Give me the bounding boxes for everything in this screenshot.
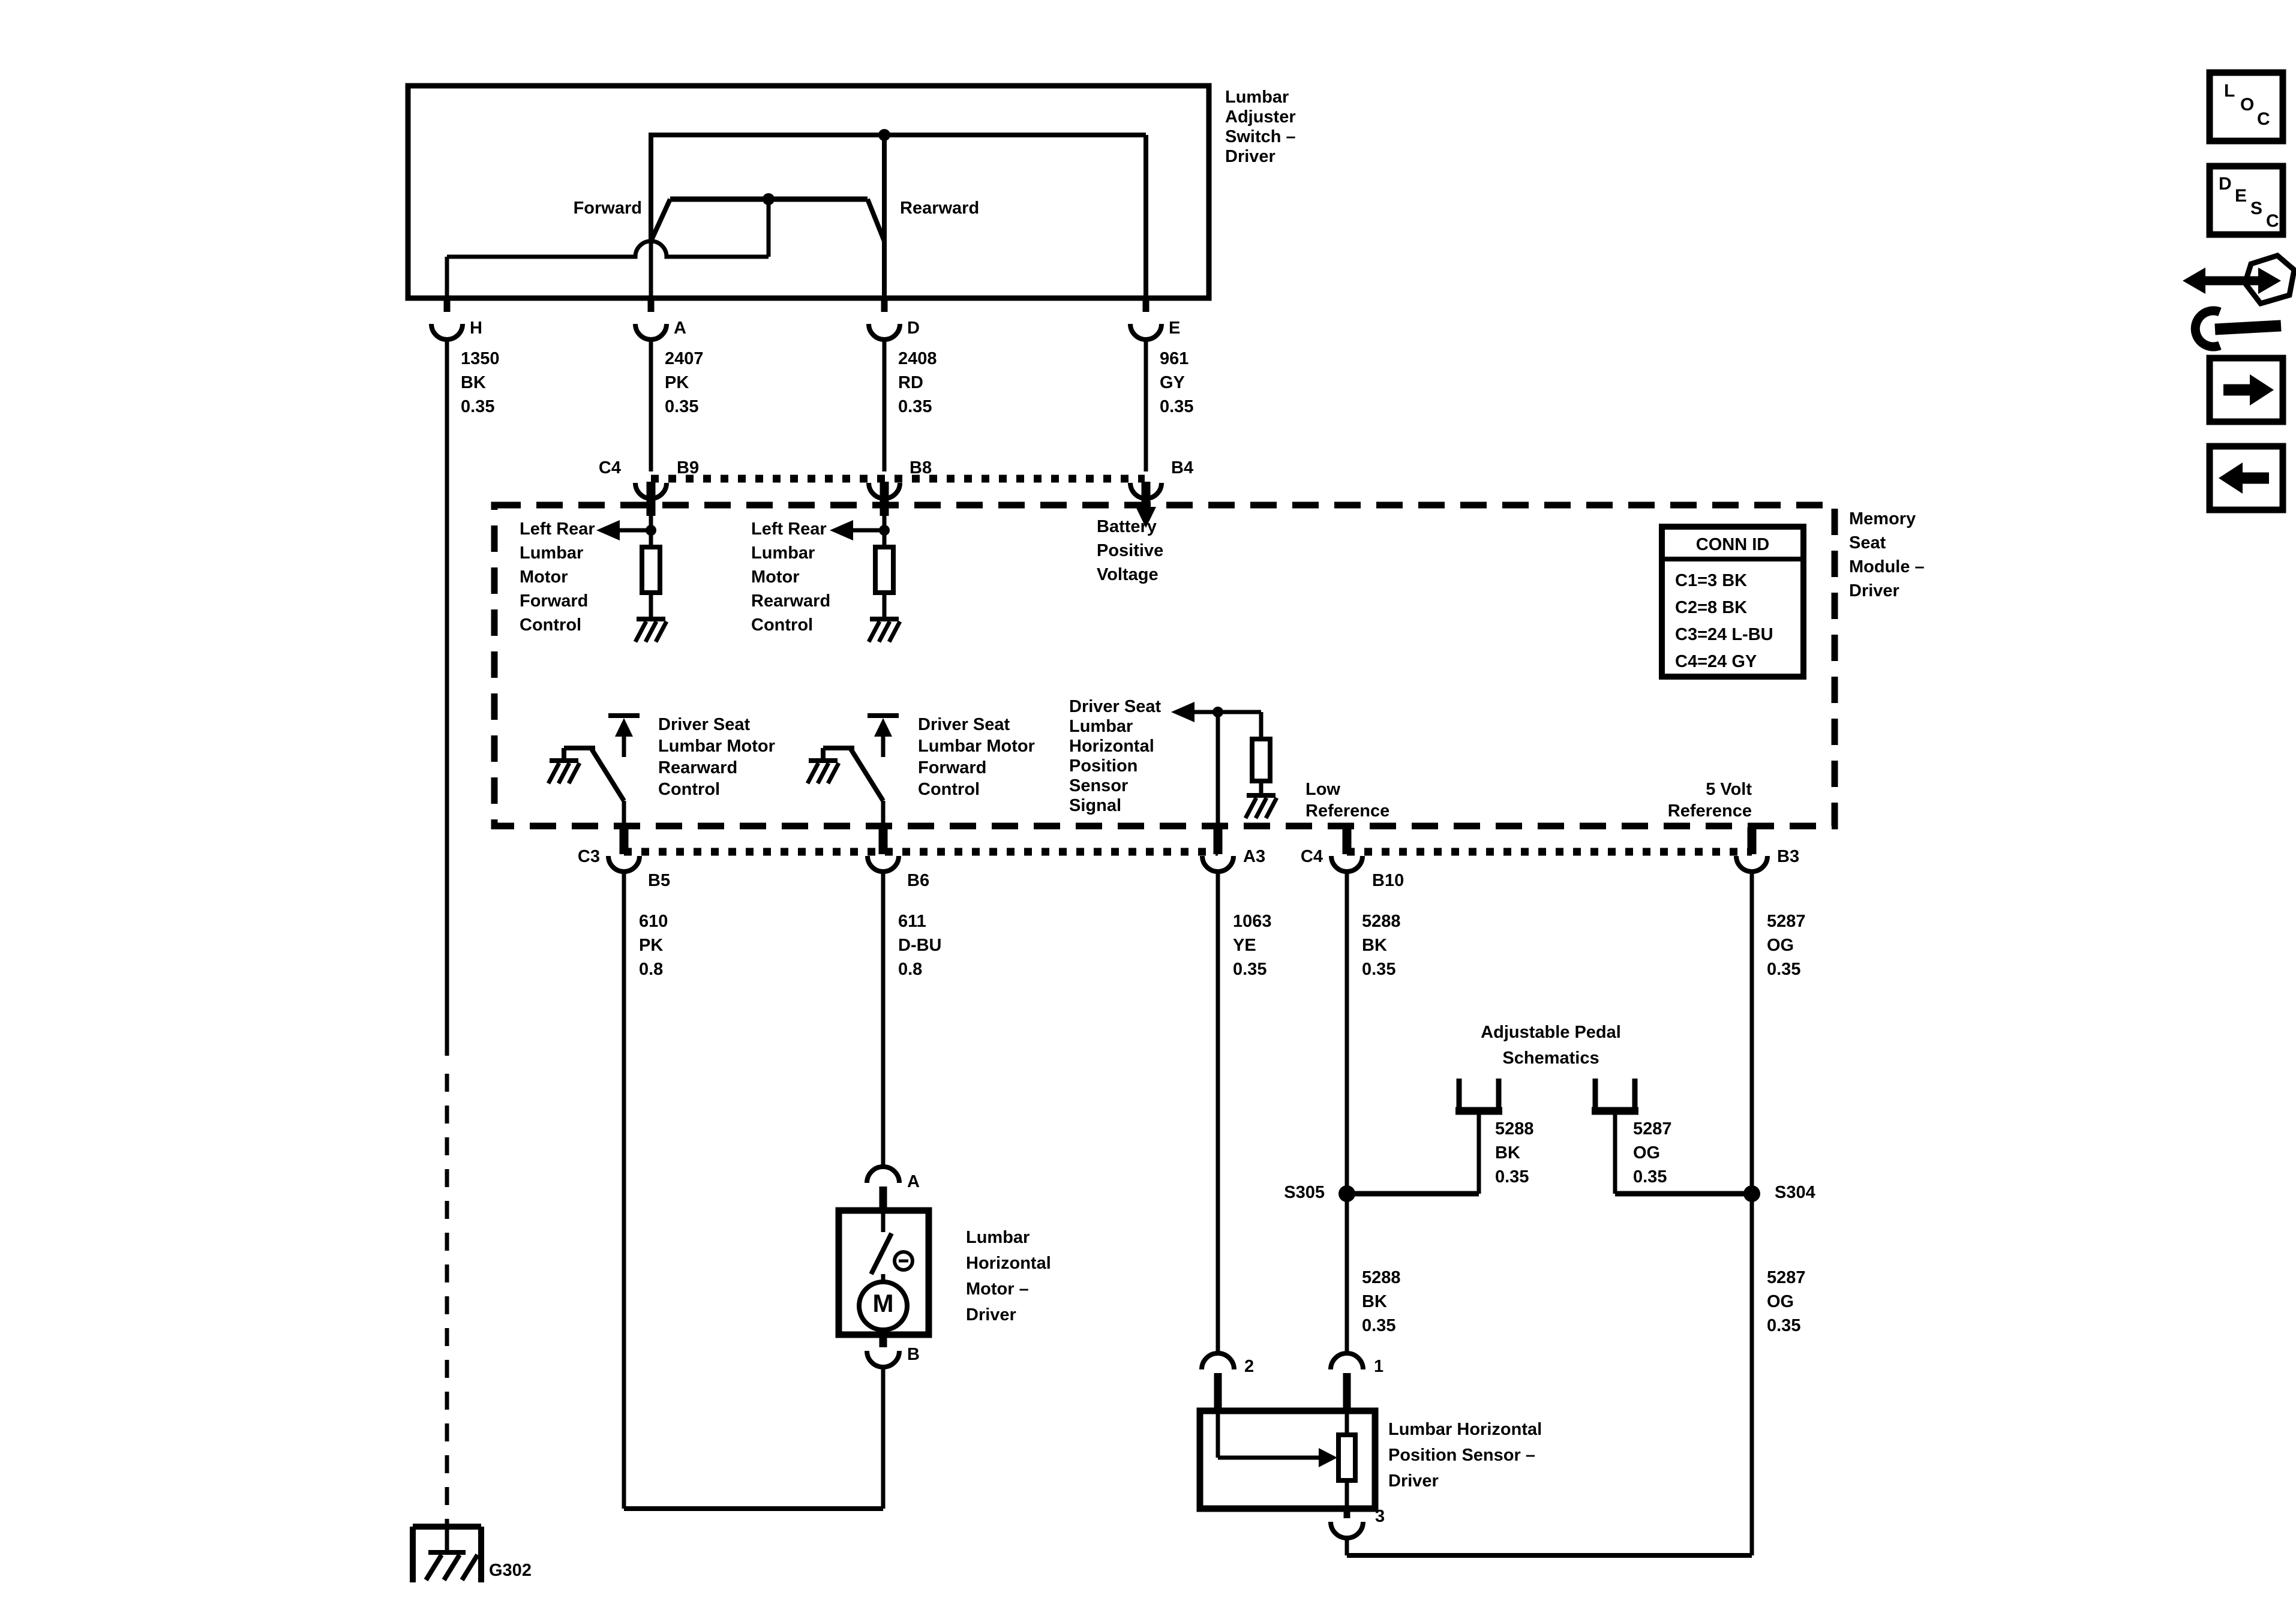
ground-icon — [548, 761, 580, 783]
conn-c4-top-label: C4 — [567, 456, 621, 480]
splice-s305-label: S305 — [1235, 1181, 1325, 1205]
wire-label-610: 610 PK 0.8 — [639, 909, 668, 981]
splice-s304-dot — [1743, 1185, 1760, 1202]
module-internal-a3-signal — [1171, 702, 1277, 827]
module-internal-b9-driver — [596, 516, 667, 642]
ds-forward-label: Driver Seat Lumbar Motor Forward Control — [918, 714, 1035, 800]
loc-letter: C — [2257, 109, 2270, 130]
potentiometer-resistor — [1338, 1435, 1355, 1480]
pin-d-connector-arc — [869, 324, 900, 340]
pin-e-connector-arc — [1130, 324, 1161, 340]
loc-letter: L — [2224, 81, 2235, 101]
wiring-diagram-page: Lumbar Adjuster Switch – Driver Forward … — [0, 0, 2296, 1613]
wire-label-5288-lower: 5288 BK 0.35 — [1362, 1266, 1401, 1338]
conn-c3-label: C3 — [546, 845, 600, 869]
up-contact-arrow-icon — [874, 718, 892, 737]
conn-id-title: CONN ID — [1662, 533, 1803, 557]
sensor-pin-2-arc — [1202, 1353, 1234, 1369]
wire-label-961: 961 GY 0.35 — [1160, 347, 1193, 419]
g302-ground — [413, 1527, 481, 1582]
left-rear-fwd-label: Left Rear Lumbar Motor Forward Control — [520, 517, 595, 637]
motor-pin-a-label: A — [907, 1170, 920, 1194]
pedal-branch-5287-label: 5287 OG 0.35 — [1633, 1117, 1672, 1189]
low-reference-label: Low Reference — [1305, 779, 1389, 822]
module-connector-row-c4 — [1331, 827, 1767, 872]
wire-label-5287-lower: 5287 OG 0.35 — [1767, 1266, 1806, 1338]
memory-seat-module-label: Memory Seat Module – Driver — [1849, 507, 1925, 603]
wire-label-2407: 2407 PK 0.35 — [665, 347, 704, 419]
pin-b9-label: B9 — [677, 456, 699, 480]
battery-positive-label: Battery Positive Voltage — [1097, 515, 1163, 587]
left-rear-rwd-label: Left Rear Lumbar Motor Rearward Control — [751, 517, 830, 637]
g302-label: G302 — [489, 1558, 532, 1582]
motor-pin-b-label: B — [907, 1342, 920, 1366]
ground-icon — [808, 761, 839, 783]
ground-icon — [869, 619, 900, 642]
pin-a3-connector-arc — [1202, 856, 1233, 872]
module-internal-b5-driver — [548, 716, 640, 827]
pin-a3-label: A3 — [1243, 845, 1265, 869]
switch-blade — [850, 748, 883, 801]
next-button[interactable] — [2210, 358, 2283, 422]
conn-id-rows: C1=3 BK C2=8 BK C3=24 L-BU C4=24 GY — [1675, 567, 1773, 675]
sensor-pin-1-label: 1 — [1374, 1354, 1383, 1378]
pin-b3-label: B3 — [1777, 845, 1799, 869]
motor-pin-a-arc — [867, 1167, 899, 1183]
ground-icon — [635, 619, 667, 642]
breaker-blade — [871, 1233, 892, 1274]
motor-name-label: Lumbar Horizontal Motor – Driver — [966, 1225, 1051, 1328]
pin-b10-connector-arc — [1331, 856, 1362, 872]
pin-h-label: H — [470, 316, 482, 340]
forward-label: Forward — [507, 196, 642, 220]
sensor-pin-1-arc — [1331, 1353, 1363, 1369]
up-contact-arrow-icon — [615, 718, 633, 737]
sensor-pin-3-label: 3 — [1375, 1504, 1385, 1528]
ground-icon — [1245, 795, 1277, 818]
pin-b10-label: B10 — [1372, 869, 1404, 893]
module-internal-b8-driver — [830, 516, 900, 642]
ds-signal-label: Driver Seat Lumbar Horizontal Position S… — [1069, 697, 1161, 816]
sensor-pin-2-label: 2 — [1244, 1354, 1254, 1378]
ds-rearward-label: Driver Seat Lumbar Motor Rearward Contro… — [658, 714, 775, 800]
wire-label-1350: 1350 BK 0.35 — [461, 347, 500, 419]
pin-b6-connector-arc — [868, 856, 899, 872]
resistor-symbol — [875, 547, 893, 593]
switch-title: Lumbar Adjuster Switch – Driver — [1225, 88, 1296, 167]
wrench-arrows-button[interactable] — [2183, 254, 2296, 347]
desc-letter: D — [2219, 174, 2232, 194]
desc-letter: E — [2235, 186, 2247, 206]
module-connector-row-c3 — [608, 828, 1233, 872]
sensor-pin-3-arc — [1331, 1522, 1363, 1538]
wire-label-2408: 2408 RD 0.35 — [898, 347, 937, 419]
pin-e-label: E — [1169, 316, 1180, 340]
splice-s305-dot — [1338, 1185, 1355, 1202]
lower-harness-wires — [624, 872, 1752, 1555]
module-internal-b6-driver — [808, 716, 899, 827]
loc-letter: O — [2240, 95, 2254, 115]
wire-label-5287: 5287 OG 0.35 — [1767, 909, 1806, 981]
lumbar-horizontal-motor — [624, 1167, 929, 1509]
five-volt-reference-label: 5 Volt Reference — [1614, 779, 1752, 822]
left-arrowhead-icon — [830, 520, 853, 540]
lumbar-adjuster-switch-box — [408, 86, 1209, 298]
sensor-name-label: Lumbar Horizontal Position Sensor – Driv… — [1388, 1417, 1542, 1494]
left-arrowhead-icon — [596, 520, 620, 540]
motor-pin-b-arc — [867, 1351, 899, 1367]
pin-a-label: A — [674, 316, 686, 340]
pin-h-connector-arc — [431, 324, 463, 340]
conn-c4-bottom-label: C4 — [1269, 845, 1323, 869]
back-button[interactable] — [2210, 446, 2283, 510]
splice-s304-label: S304 — [1775, 1181, 1815, 1205]
pin-b5-connector-arc — [608, 856, 640, 872]
motor-m-label: M — [865, 1291, 901, 1315]
wire-label-5288: 5288 BK 0.35 — [1362, 909, 1401, 981]
pin-b3-connector-arc — [1736, 856, 1767, 872]
pin-b5-label: B5 — [648, 869, 670, 893]
rearward-label: Rearward — [900, 196, 979, 220]
resistor-symbol — [1252, 739, 1270, 781]
pin-d-label: D — [907, 316, 920, 340]
pin-b4-label: B4 — [1171, 456, 1193, 480]
switch-pin-connectors — [431, 298, 1161, 340]
pedal-branch-5288-label: 5288 BK 0.35 — [1495, 1117, 1534, 1189]
desc-letter: S — [2250, 199, 2262, 219]
left-arrowhead-icon — [1171, 702, 1194, 722]
resistor-symbol — [642, 547, 660, 593]
wire-label-1063: 1063 YE 0.35 — [1233, 909, 1272, 981]
adjustable-pedal-branch — [1338, 1079, 1760, 1202]
adjustable-pedal-title: Adjustable Pedal Schematics — [1428, 1020, 1674, 1071]
crossover-hump — [447, 241, 769, 257]
pin-b6-label: B6 — [907, 869, 929, 893]
pin-a-connector-arc — [635, 324, 667, 340]
switch-blade — [591, 748, 624, 801]
wire-label-611: 611 D-BU 0.8 — [898, 909, 942, 981]
wiper-arrowhead-icon — [1319, 1448, 1337, 1467]
desc-letter: C — [2266, 211, 2279, 232]
pin-b8-label: B8 — [910, 456, 932, 480]
